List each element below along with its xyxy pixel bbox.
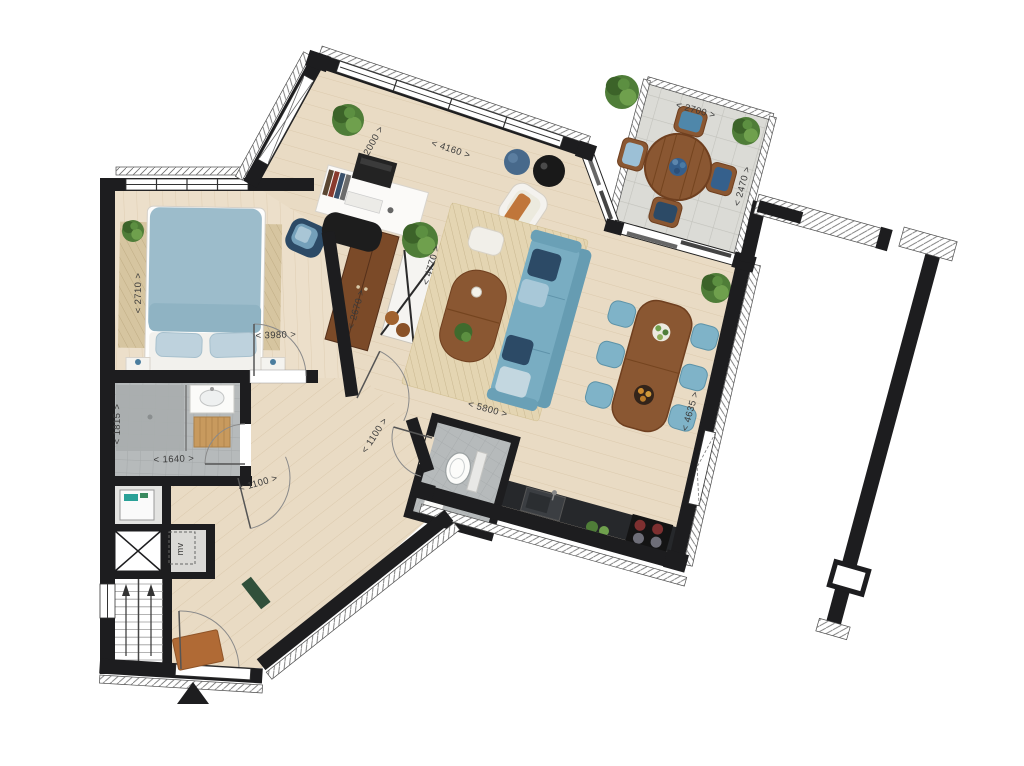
- knit-pouf: [504, 149, 530, 175]
- stairs: [114, 576, 163, 668]
- dim-label-bathroom_length: < 1640 >: [153, 453, 194, 465]
- floorplan-svg: mv< 2700 >< 2470 >< 4160 >< 2000 >< 2710…: [0, 0, 1024, 766]
- neighbor-walls: [739, 194, 957, 639]
- dim-label-bedroom_length: < 3980 >: [255, 329, 296, 341]
- label-mech-vent: mv: [175, 543, 185, 556]
- floor-lamp: [533, 155, 565, 187]
- floorplan-canvas: mv< 2700 >< 2470 >< 4160 >< 2000 >< 2710…: [0, 0, 1024, 766]
- elevator-icon: [114, 530, 162, 572]
- dim-label-bathroom_width: < 1815 >: [112, 404, 123, 445]
- dim-label-bedroom_width: < 2710 >: [133, 273, 144, 314]
